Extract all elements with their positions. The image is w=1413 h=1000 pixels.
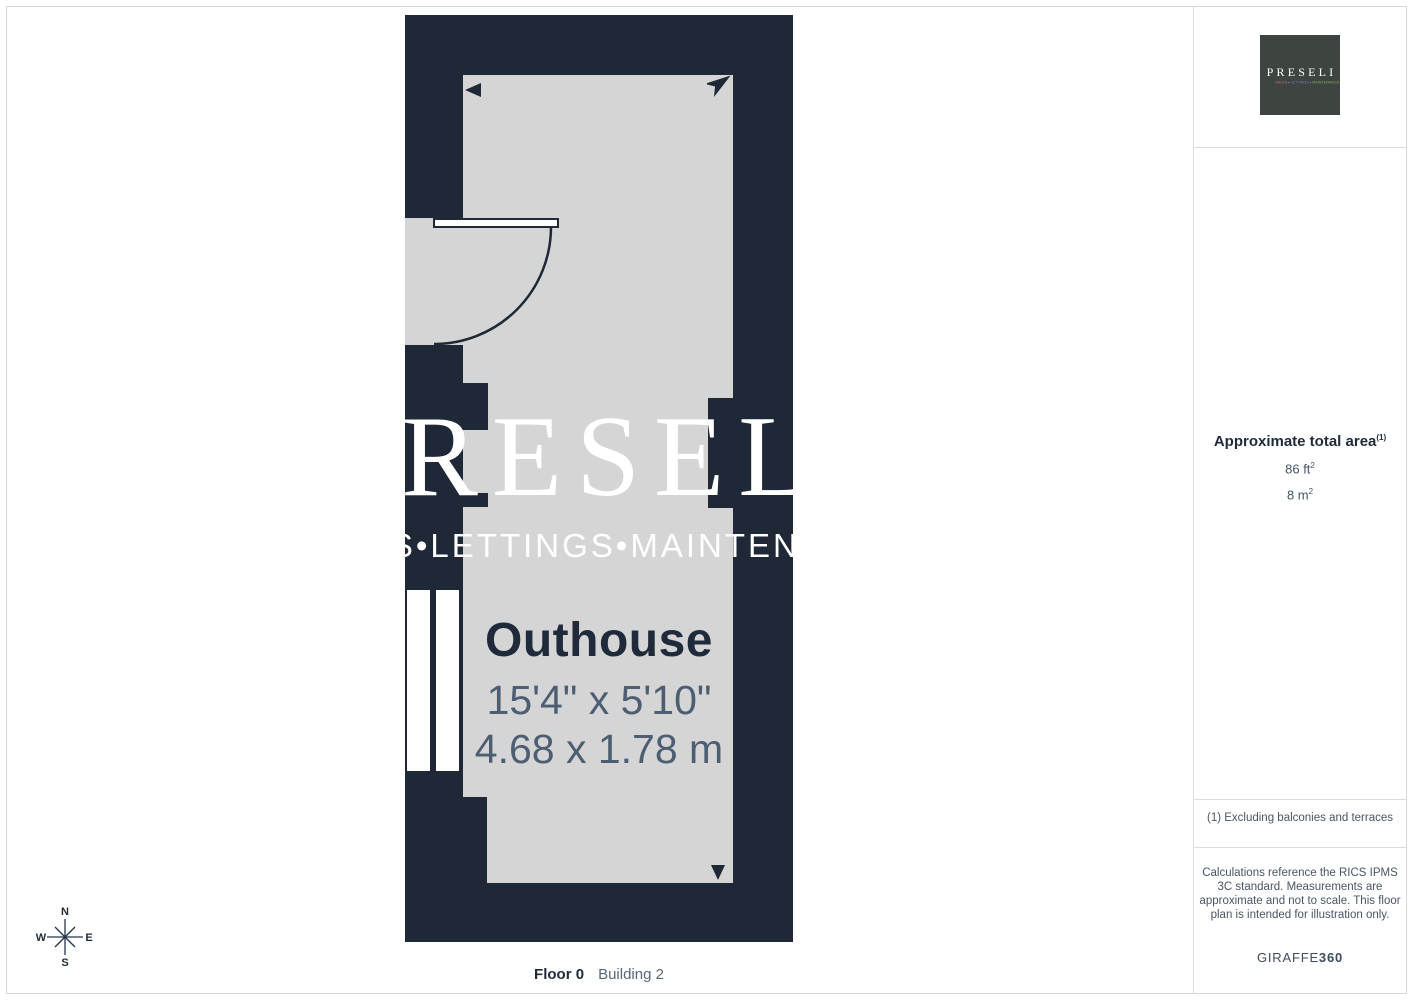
logo-tagline-sales: SALES <box>1275 81 1287 85</box>
camera-arrow-down-icon <box>711 865 725 880</box>
compass-north-label: N <box>61 906 69 918</box>
divider <box>1194 147 1406 148</box>
disclaimer-text: Calculations reference the RICS IPMS 3C … <box>1198 866 1402 922</box>
logo-tagline-dot: • <box>1310 81 1311 85</box>
north-arrow-icon <box>707 69 735 99</box>
total-area-imperial-sup: 2 <box>1310 461 1314 470</box>
logo-tagline-dot: • <box>1288 81 1289 85</box>
giraffe360-brand-name: GIRAFFE <box>1257 950 1319 965</box>
compass-west-label: W <box>36 932 47 944</box>
total-area-imperial: 86 ft2 <box>1194 458 1406 476</box>
logo-tagline: SALES • LETTINGS • MAINTENANCE <box>1275 81 1325 85</box>
building-label: Building 2 <box>598 966 664 983</box>
room-dimensions-metric: 4.68 x 1.78 m <box>405 729 793 770</box>
compass-icon: N E S W <box>33 905 97 969</box>
watermark-brand-tagline: SALES•LETTINGS•MAINTENANCE <box>405 529 793 562</box>
room-name: Outhouse <box>405 617 793 665</box>
floorplan-canvas: PRESELI SALES•LETTINGS•MAINTENANCE Outho… <box>405 15 793 942</box>
total-area-metric: 8 m2 <box>1194 484 1406 502</box>
plan-caption: Floor 0Building 2 <box>405 966 793 983</box>
divider <box>1194 847 1406 848</box>
door-swing-arc-icon <box>433 226 553 346</box>
wall-segment <box>463 797 487 898</box>
total-area-metric-sup: 2 <box>1309 487 1313 496</box>
preseli-logo: PRESELI SALES • LETTINGS • MAINTENANCE <box>1260 35 1340 115</box>
divider <box>1194 799 1406 800</box>
total-area-metric-value: 8 m <box>1287 488 1309 503</box>
total-area-title: Approximate total area(1) <box>1194 430 1406 450</box>
area-footnote: (1) Excluding balconies and terraces <box>1194 812 1406 824</box>
room-label: Outhouse 15'4" x 5'10" 4.68 x 1.78 m <box>405 617 793 770</box>
total-area-title-text: Approximate total area <box>1214 433 1377 450</box>
giraffe360-brand: GIRAFFE360 <box>1194 950 1406 965</box>
floorplan-page: PRESELI SALES•LETTINGS•MAINTENANCE Outho… <box>0 0 1413 1000</box>
compass-south-label: S <box>61 957 68 969</box>
giraffe360-brand-suffix: 360 <box>1319 950 1343 965</box>
compass-east-label: E <box>85 932 92 944</box>
logo-tagline-lettings: LETTINGS <box>1291 81 1309 85</box>
total-area-imperial-value: 86 ft <box>1285 461 1310 476</box>
total-area-block: Approximate total area(1) 86 ft2 8 m2 <box>1194 430 1406 503</box>
watermark-brand-serif: PRESELI <box>405 399 793 514</box>
floor-label: Floor 0 <box>534 966 584 983</box>
camera-arrow-left-icon <box>465 83 481 97</box>
logo-tagline-maintenance: MAINTENANCE <box>1312 81 1339 85</box>
footnote-marker: (1) <box>1376 433 1386 442</box>
room-dimensions-imperial: 15'4" x 5'10" <box>405 680 793 721</box>
logo-wordmark: PRESELI <box>1260 65 1340 80</box>
